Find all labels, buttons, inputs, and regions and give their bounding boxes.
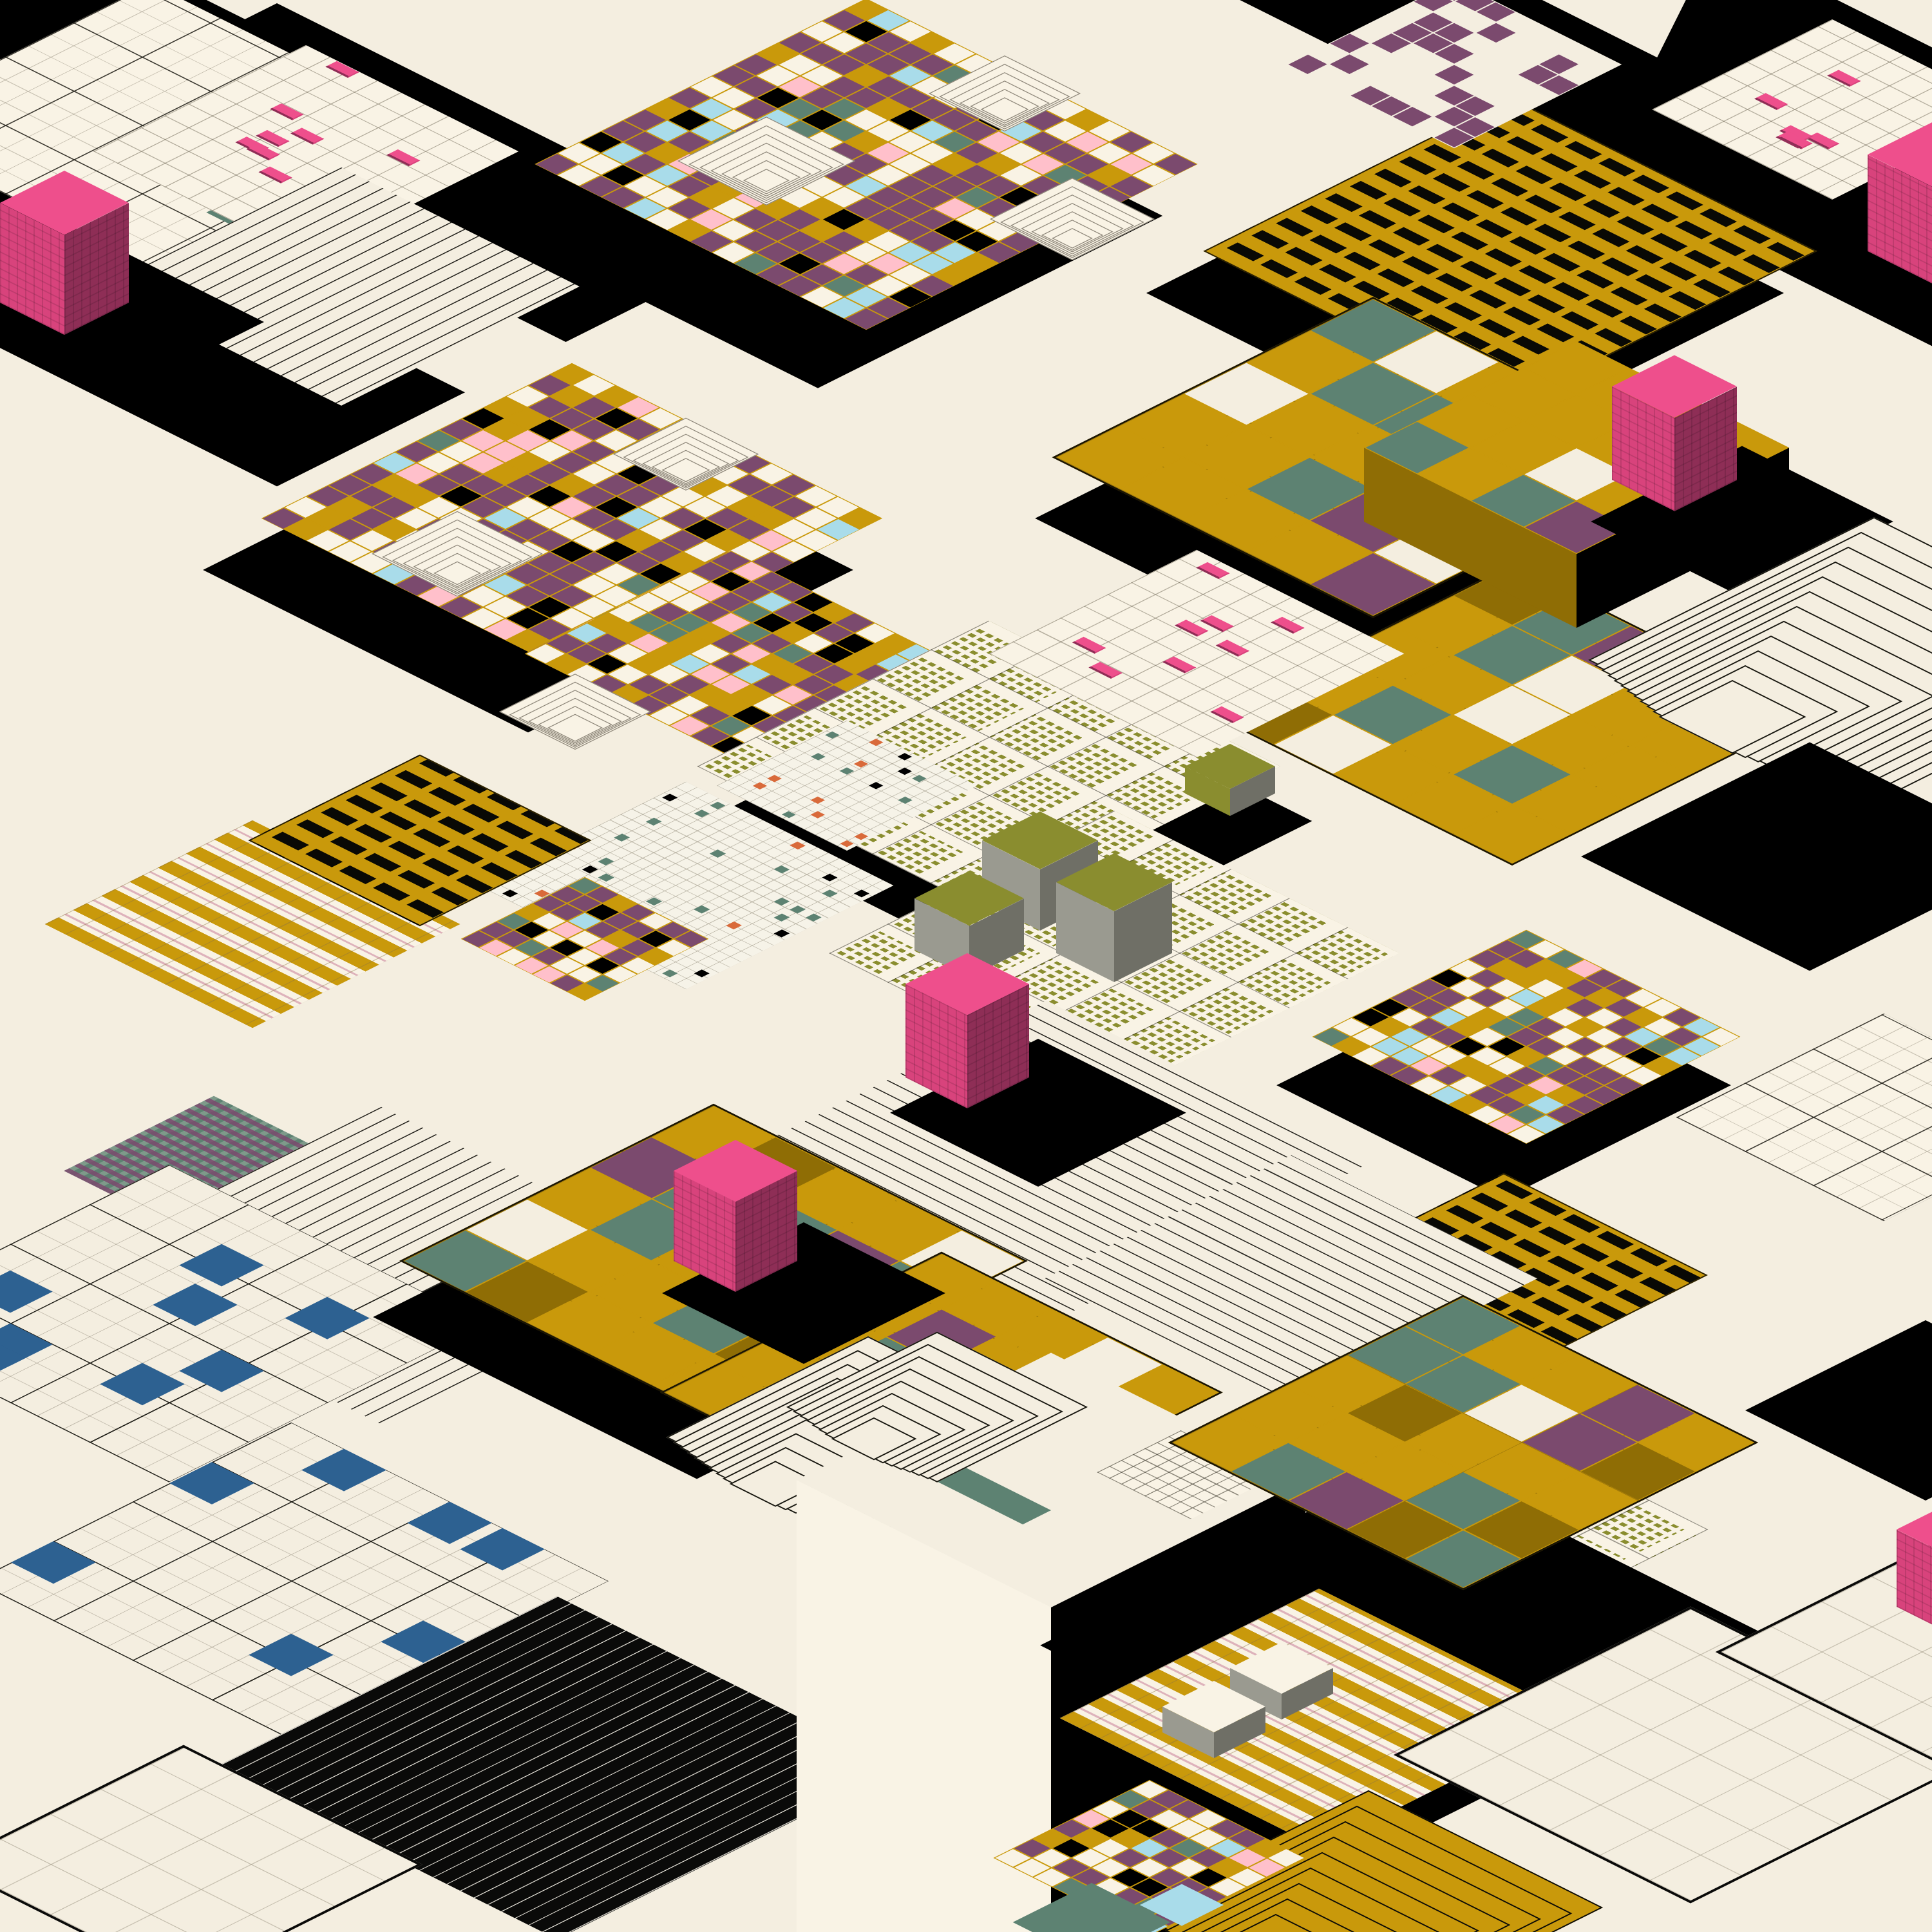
paper-fleck xyxy=(811,753,825,760)
paper-fleck xyxy=(811,811,825,818)
pink-bar xyxy=(246,144,279,160)
paper-fleck xyxy=(502,889,518,897)
blue-square-cell xyxy=(285,1297,370,1340)
paper-fleck xyxy=(854,833,868,840)
pink-bar xyxy=(1827,70,1861,87)
paper-fleck xyxy=(646,818,662,826)
black-ground-right-2 xyxy=(1745,1320,1932,1501)
paper-fleck xyxy=(582,866,598,873)
paper-fleck xyxy=(662,969,678,977)
paper-fleck xyxy=(790,842,806,849)
paper-fleck xyxy=(840,768,854,775)
paper-fleck xyxy=(840,840,854,847)
pink-bar xyxy=(1216,639,1249,656)
blue-square-cell xyxy=(179,1350,263,1392)
pink-bar xyxy=(1210,706,1244,723)
paper-fleck xyxy=(710,849,726,857)
blue-square-cell xyxy=(153,1283,237,1326)
pink-bar xyxy=(386,149,420,166)
paper-fleck xyxy=(726,922,742,929)
paper-fleck xyxy=(773,866,790,873)
pink-bar xyxy=(270,104,304,120)
paper-fleck xyxy=(694,905,710,913)
blue-square-cell xyxy=(0,1271,52,1313)
paper-fleck xyxy=(710,802,726,810)
blue-square-cell xyxy=(179,1244,263,1287)
pink-bar xyxy=(1163,656,1197,673)
paper-fleck xyxy=(598,873,614,881)
blue-square-cell xyxy=(100,1363,184,1406)
paper-fleck xyxy=(898,753,912,760)
paper-fleck xyxy=(773,913,790,921)
pink-bar xyxy=(1072,637,1106,654)
paper-fleck xyxy=(853,889,869,897)
paper-fleck xyxy=(662,793,678,801)
paper-fleck xyxy=(822,873,838,881)
pink-bar xyxy=(1754,93,1788,110)
blue-square-cell xyxy=(460,1528,545,1571)
paper-fleck xyxy=(822,889,838,897)
paper-fleck xyxy=(767,775,781,782)
paper-fleck xyxy=(825,732,839,739)
pink-bar xyxy=(1271,617,1304,634)
paper-fleck xyxy=(753,782,767,789)
paper-fleck xyxy=(811,797,825,804)
paper-fleck xyxy=(912,775,926,782)
paper-fleck xyxy=(869,782,883,789)
paper-fleck xyxy=(773,898,790,905)
paper-fleck xyxy=(898,797,912,804)
paper-fleck xyxy=(694,969,710,977)
pink-bar xyxy=(1088,662,1122,679)
pink-bar xyxy=(259,167,292,184)
blue-square-cell xyxy=(11,1541,95,1584)
paper-fleck xyxy=(646,898,662,905)
paper-fleck xyxy=(782,811,796,818)
paper-fleck xyxy=(869,739,883,746)
paper-fleck xyxy=(790,905,806,913)
paper-fleck xyxy=(854,761,868,768)
pink-bar xyxy=(290,128,324,144)
paper-fleck xyxy=(694,810,710,817)
paper-fleck xyxy=(614,833,630,841)
blue-square-cell xyxy=(408,1502,492,1544)
paper-fleck xyxy=(898,768,912,775)
paper-fleck xyxy=(598,858,614,866)
blue-square-cell xyxy=(301,1449,386,1492)
pink-bar xyxy=(1197,562,1230,579)
isometric-city-artwork xyxy=(0,0,1932,1932)
paper-fleck xyxy=(773,929,790,937)
blue-square-cell xyxy=(249,1634,333,1676)
paper-fleck xyxy=(806,913,822,921)
